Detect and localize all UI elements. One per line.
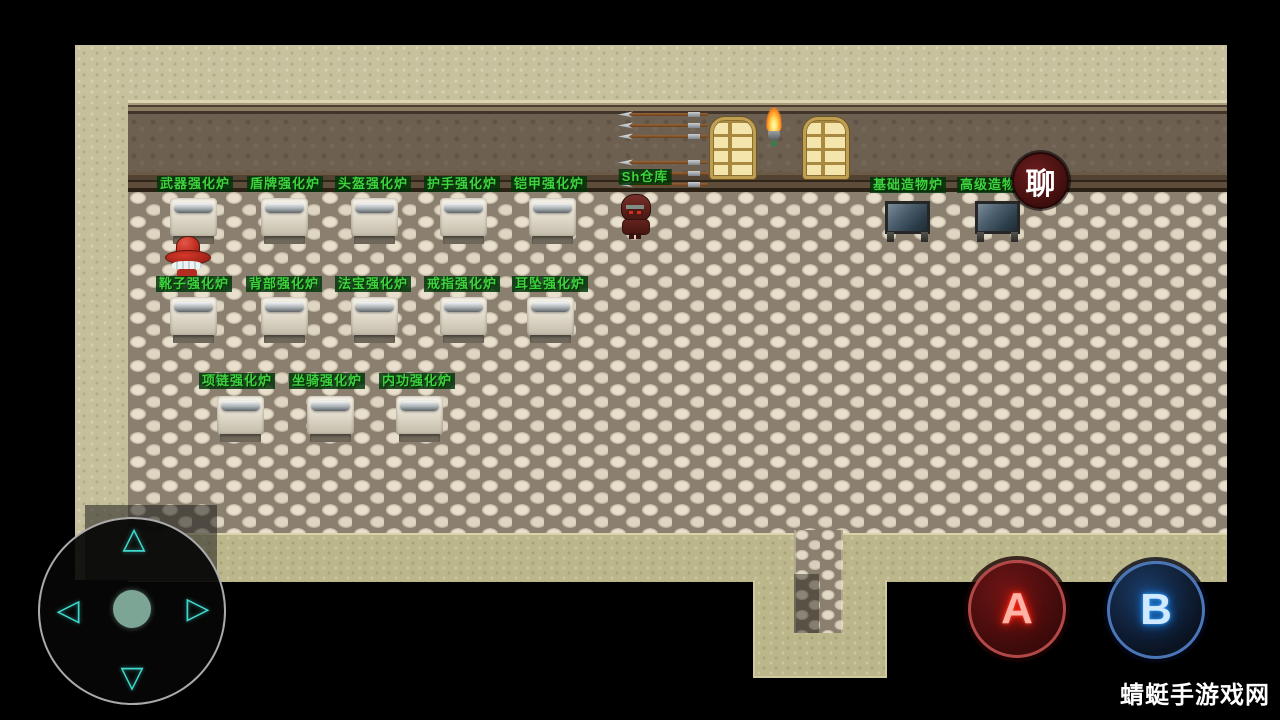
- torch-icon: [764, 107, 784, 151]
- site-watermark: 蜻蜓手游戏网: [1120, 675, 1270, 710]
- button-b[interactable]: B: [1107, 561, 1205, 659]
- dpad-left-icon[interactable]: ◁: [56, 596, 79, 626]
- station-label: 武器强化炉: [157, 176, 233, 192]
- passage-shadow: [794, 574, 819, 633]
- forge-station[interactable]: [440, 297, 487, 336]
- forge-station[interactable]: [170, 297, 217, 336]
- forge-station[interactable]: [351, 297, 398, 336]
- forge-station[interactable]: [261, 297, 308, 336]
- warehouse-npc[interactable]: [618, 192, 652, 240]
- spear-icon: [618, 133, 710, 140]
- station-label: 背部强化炉: [246, 276, 322, 292]
- station-label: 内功强化炉: [379, 373, 455, 389]
- wall-top-rim: [75, 45, 1227, 102]
- station-label: 戒指强化炉: [424, 276, 500, 292]
- forge-station[interactable]: [527, 297, 574, 336]
- forge-station[interactable]: [217, 396, 264, 435]
- dpad-up-icon[interactable]: △: [122, 524, 145, 554]
- dpad-down-icon[interactable]: ▽: [120, 663, 143, 693]
- spear-icon: [618, 111, 710, 118]
- button-a[interactable]: A: [968, 560, 1066, 658]
- station-label: 头盔强化炉: [335, 176, 411, 192]
- station-label: 坐骑强化炉: [289, 373, 365, 389]
- station-label: 靴子强化炉: [156, 276, 232, 292]
- warehouse-label: Sh仓库: [619, 169, 672, 185]
- red-hat-npc[interactable]: [164, 234, 210, 278]
- forge-station[interactable]: [440, 198, 487, 237]
- arched-window: [803, 117, 849, 179]
- button-b-label: B: [1140, 585, 1172, 635]
- game-screen: 武器强化炉 盾牌强化炉 头盔强化炉 护手强化炉 铠甲强化炉 Sh仓库 基础造物炉…: [0, 0, 1280, 720]
- wall-bottom-band: [128, 533, 1227, 582]
- forge-station[interactable]: [307, 396, 354, 435]
- station-label: 项链强化炉: [199, 373, 275, 389]
- station-label: 护手强化炉: [424, 176, 500, 192]
- spear-icon: [618, 122, 710, 129]
- forge-station[interactable]: [529, 198, 576, 237]
- craft-station-label: 基础造物炉: [870, 177, 946, 193]
- craft-station-label: 高级造物: [957, 177, 1019, 193]
- spear-icon: [618, 159, 710, 166]
- dpad-center-knob[interactable]: [113, 590, 151, 628]
- craft-desk[interactable]: [975, 201, 1020, 242]
- forge-station[interactable]: [261, 198, 308, 237]
- dpad[interactable]: △ ◁ ▷ ▽: [38, 517, 226, 705]
- station-label: 铠甲强化炉: [511, 176, 587, 192]
- forge-station[interactable]: [351, 198, 398, 237]
- forge-station[interactable]: [170, 198, 217, 237]
- forge-station[interactable]: [396, 396, 443, 435]
- chat-button[interactable]: 聊: [1012, 152, 1069, 209]
- station-label: 耳坠强化炉: [512, 276, 588, 292]
- arched-window: [710, 117, 756, 179]
- button-a-label: A: [1001, 584, 1033, 634]
- station-label: 法宝强化炉: [335, 276, 411, 292]
- craft-desk[interactable]: [885, 201, 930, 242]
- chat-button-label: 聊: [1026, 159, 1056, 203]
- dpad-right-icon[interactable]: ▷: [186, 594, 209, 624]
- station-label: 盾牌强化炉: [247, 176, 323, 192]
